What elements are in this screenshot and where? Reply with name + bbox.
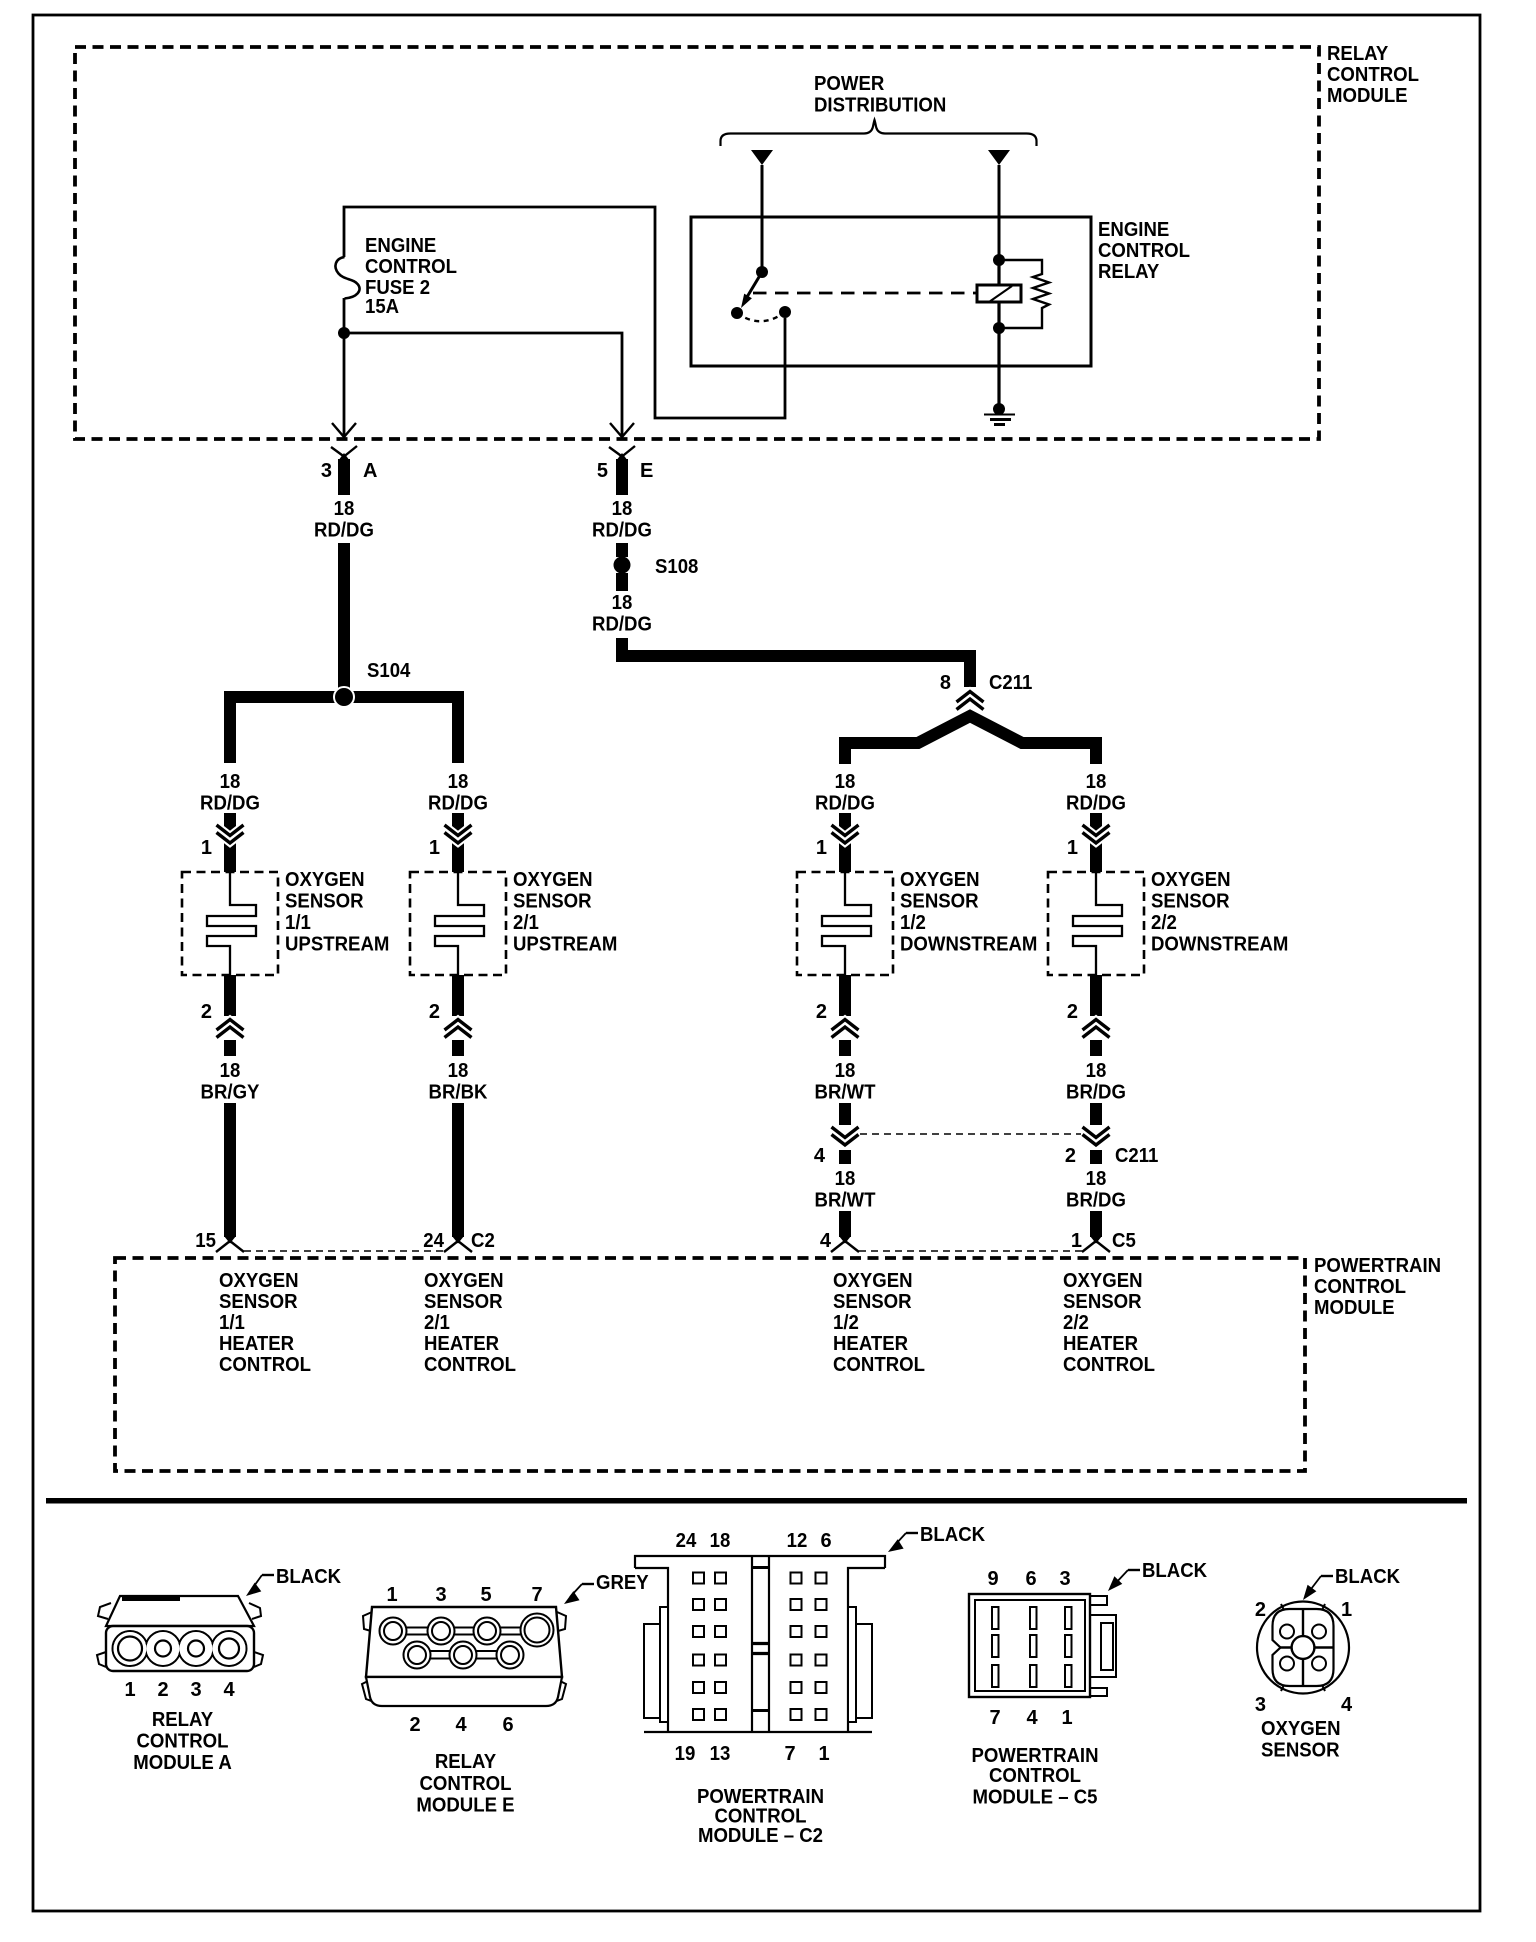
svg-text:OXYGEN: OXYGEN xyxy=(424,1270,504,1292)
svg-text:A: A xyxy=(363,460,377,482)
svg-text:E: E xyxy=(640,460,653,482)
svg-text:4: 4 xyxy=(1026,1707,1038,1729)
svg-text:SENSOR: SENSOR xyxy=(833,1291,912,1313)
svg-text:18: 18 xyxy=(220,771,241,793)
svg-text:HEATER: HEATER xyxy=(1063,1333,1139,1355)
svg-text:8: 8 xyxy=(940,672,951,694)
svg-text:OXYGEN: OXYGEN xyxy=(1261,1718,1341,1740)
svg-text:SENSOR: SENSOR xyxy=(513,891,592,913)
svg-text:1: 1 xyxy=(1061,1707,1072,1729)
svg-text:MODULE A: MODULE A xyxy=(133,1752,232,1774)
svg-text:CONTROL: CONTROL xyxy=(989,1765,1081,1787)
svg-text:BR/GY: BR/GY xyxy=(201,1082,261,1104)
svg-text:18: 18 xyxy=(1086,1060,1107,1082)
svg-text:OXYGEN: OXYGEN xyxy=(285,869,365,891)
svg-text:18: 18 xyxy=(448,771,469,793)
svg-text:POWERTRAIN: POWERTRAIN xyxy=(1314,1255,1441,1277)
svg-text:MODULE – C5: MODULE – C5 xyxy=(972,1787,1097,1809)
svg-text:18: 18 xyxy=(612,592,633,614)
svg-text:3: 3 xyxy=(1255,1694,1266,1716)
svg-text:UPSTREAM: UPSTREAM xyxy=(513,934,617,956)
svg-text:OXYGEN: OXYGEN xyxy=(1063,1270,1143,1292)
svg-text:SENSOR: SENSOR xyxy=(219,1291,298,1313)
svg-text:RELAY: RELAY xyxy=(152,1709,214,1731)
svg-text:MODULE – C2: MODULE – C2 xyxy=(698,1825,823,1847)
svg-text:CONTROL: CONTROL xyxy=(1063,1354,1155,1376)
svg-text:2: 2 xyxy=(1255,1599,1266,1621)
svg-text:5: 5 xyxy=(480,1584,491,1606)
svg-text:RELAY: RELAY xyxy=(435,1751,497,1773)
svg-text:3: 3 xyxy=(190,1679,201,1701)
svg-text:RD/DG: RD/DG xyxy=(815,793,875,815)
svg-text:UPSTREAM: UPSTREAM xyxy=(285,934,389,956)
svg-text:2/1: 2/1 xyxy=(513,912,539,934)
svg-text:BR/DG: BR/DG xyxy=(1066,1190,1126,1212)
svg-text:BR/BK: BR/BK xyxy=(429,1082,488,1104)
svg-text:1: 1 xyxy=(816,837,827,859)
svg-text:15A: 15A xyxy=(365,296,399,318)
svg-text:CONTROL: CONTROL xyxy=(833,1354,925,1376)
svg-text:BLACK: BLACK xyxy=(1142,1560,1208,1582)
svg-text:POWER: POWER xyxy=(814,73,885,95)
svg-text:OXYGEN: OXYGEN xyxy=(1151,869,1231,891)
svg-text:RELAY: RELAY xyxy=(1098,261,1160,283)
svg-text:18: 18 xyxy=(448,1060,469,1082)
svg-text:9: 9 xyxy=(987,1568,998,1590)
svg-text:2: 2 xyxy=(201,1001,212,1023)
svg-text:C5: C5 xyxy=(1112,1230,1136,1252)
svg-text:6: 6 xyxy=(820,1530,831,1552)
svg-text:18: 18 xyxy=(612,498,633,520)
svg-text:1: 1 xyxy=(386,1584,397,1606)
svg-text:CONTROL: CONTROL xyxy=(219,1354,311,1376)
svg-text:3: 3 xyxy=(435,1584,446,1606)
svg-text:24: 24 xyxy=(676,1530,698,1552)
svg-text:2/2: 2/2 xyxy=(1151,912,1177,934)
svg-text:OXYGEN: OXYGEN xyxy=(513,869,593,891)
svg-text:MODULE E: MODULE E xyxy=(416,1795,514,1817)
svg-text:2/2: 2/2 xyxy=(1063,1312,1089,1334)
svg-text:2: 2 xyxy=(409,1714,420,1736)
svg-text:2/1: 2/1 xyxy=(424,1312,450,1334)
svg-text:BLACK: BLACK xyxy=(1335,1566,1401,1588)
svg-text:2: 2 xyxy=(816,1001,827,1023)
svg-text:24: 24 xyxy=(423,1230,445,1252)
svg-text:1/1: 1/1 xyxy=(285,912,311,934)
svg-text:2: 2 xyxy=(1065,1145,1076,1167)
svg-text:5: 5 xyxy=(597,460,608,482)
svg-text:4: 4 xyxy=(455,1714,467,1736)
svg-text:4: 4 xyxy=(223,1679,235,1701)
svg-text:4: 4 xyxy=(814,1145,826,1167)
svg-text:RD/DG: RD/DG xyxy=(1066,793,1126,815)
svg-text:3: 3 xyxy=(1059,1568,1070,1590)
svg-text:1/2: 1/2 xyxy=(833,1312,859,1334)
svg-text:4: 4 xyxy=(1341,1694,1353,1716)
svg-text:C211: C211 xyxy=(989,672,1032,694)
svg-text:DISTRIBUTION: DISTRIBUTION xyxy=(814,95,946,117)
svg-text:18: 18 xyxy=(1086,1168,1107,1190)
svg-text:4: 4 xyxy=(820,1230,832,1252)
svg-text:CONTROL: CONTROL xyxy=(420,1773,512,1795)
svg-text:SENSOR: SENSOR xyxy=(1151,891,1230,913)
svg-text:CONTROL: CONTROL xyxy=(1314,1276,1406,1298)
svg-text:18: 18 xyxy=(334,498,355,520)
svg-text:BLACK: BLACK xyxy=(920,1524,986,1546)
svg-text:ENGINE: ENGINE xyxy=(365,235,436,257)
svg-text:HEATER: HEATER xyxy=(833,1333,909,1355)
svg-text:2: 2 xyxy=(157,1679,168,1701)
svg-text:18: 18 xyxy=(220,1060,241,1082)
svg-text:S104: S104 xyxy=(367,660,411,682)
svg-text:18: 18 xyxy=(835,771,856,793)
svg-text:CONTROL: CONTROL xyxy=(365,256,457,278)
svg-text:HEATER: HEATER xyxy=(219,1333,295,1355)
svg-text:BR/DG: BR/DG xyxy=(1066,1082,1126,1104)
svg-text:SENSOR: SENSOR xyxy=(900,891,979,913)
svg-text:3: 3 xyxy=(321,460,332,482)
svg-text:BR/WT: BR/WT xyxy=(815,1190,876,1212)
svg-text:1: 1 xyxy=(818,1743,829,1765)
svg-text:BR/WT: BR/WT xyxy=(815,1082,876,1104)
svg-text:RD/DG: RD/DG xyxy=(200,793,260,815)
svg-text:DOWNSTREAM: DOWNSTREAM xyxy=(1151,934,1288,956)
svg-text:OXYGEN: OXYGEN xyxy=(219,1270,299,1292)
svg-text:RD/DG: RD/DG xyxy=(314,520,374,542)
svg-text:SENSOR: SENSOR xyxy=(1261,1740,1340,1762)
svg-text:7: 7 xyxy=(531,1584,542,1606)
svg-text:1: 1 xyxy=(201,837,212,859)
svg-text:7: 7 xyxy=(989,1707,1000,1729)
svg-text:1: 1 xyxy=(1341,1599,1352,1621)
svg-text:7: 7 xyxy=(784,1743,795,1765)
svg-text:6: 6 xyxy=(1025,1568,1036,1590)
svg-text:CONTROL: CONTROL xyxy=(1098,240,1190,262)
svg-text:CONTROL: CONTROL xyxy=(1327,64,1419,86)
svg-text:HEATER: HEATER xyxy=(424,1333,500,1355)
svg-text:OXYGEN: OXYGEN xyxy=(900,869,980,891)
svg-text:DOWNSTREAM: DOWNSTREAM xyxy=(900,934,1037,956)
svg-text:C211: C211 xyxy=(1115,1145,1158,1167)
svg-text:MODULE: MODULE xyxy=(1314,1297,1395,1319)
svg-text:18: 18 xyxy=(710,1530,731,1552)
svg-text:18: 18 xyxy=(835,1060,856,1082)
svg-text:CONTROL: CONTROL xyxy=(424,1354,516,1376)
svg-text:RD/DG: RD/DG xyxy=(428,793,488,815)
svg-text:RD/DG: RD/DG xyxy=(592,520,652,542)
svg-text:RD/DG: RD/DG xyxy=(592,614,652,636)
svg-text:1/2: 1/2 xyxy=(900,912,926,934)
svg-text:19: 19 xyxy=(675,1743,696,1765)
svg-text:SENSOR: SENSOR xyxy=(424,1291,503,1313)
svg-text:1: 1 xyxy=(1067,837,1078,859)
svg-text:POWERTRAIN: POWERTRAIN xyxy=(971,1745,1098,1767)
svg-text:SENSOR: SENSOR xyxy=(285,891,364,913)
svg-text:18: 18 xyxy=(1086,771,1107,793)
svg-text:ENGINE: ENGINE xyxy=(1098,219,1169,241)
svg-text:1: 1 xyxy=(1071,1230,1082,1252)
svg-text:15: 15 xyxy=(195,1230,216,1252)
svg-text:12: 12 xyxy=(787,1530,808,1552)
svg-text:2: 2 xyxy=(429,1001,440,1023)
svg-text:S108: S108 xyxy=(655,556,698,578)
svg-text:2: 2 xyxy=(1067,1001,1078,1023)
svg-text:OXYGEN: OXYGEN xyxy=(833,1270,913,1292)
svg-text:1: 1 xyxy=(124,1679,135,1701)
svg-text:BLACK: BLACK xyxy=(276,1566,342,1588)
svg-text:1/1: 1/1 xyxy=(219,1312,245,1334)
svg-text:SENSOR: SENSOR xyxy=(1063,1291,1142,1313)
svg-text:6: 6 xyxy=(502,1714,513,1736)
svg-text:GREY: GREY xyxy=(596,1572,649,1594)
svg-text:1: 1 xyxy=(429,837,440,859)
svg-text:C2: C2 xyxy=(471,1230,495,1252)
svg-text:MODULE: MODULE xyxy=(1327,85,1408,107)
svg-text:CONTROL: CONTROL xyxy=(137,1731,229,1753)
svg-text:18: 18 xyxy=(835,1168,856,1190)
svg-text:13: 13 xyxy=(710,1743,731,1765)
svg-text:RELAY: RELAY xyxy=(1327,43,1389,65)
